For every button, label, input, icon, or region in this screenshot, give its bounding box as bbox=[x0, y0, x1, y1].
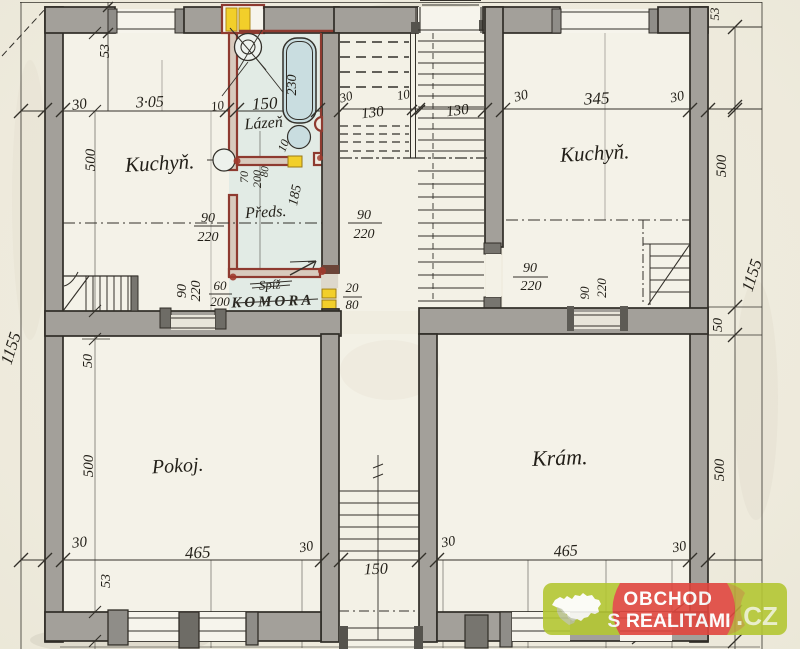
svg-text:53: 53 bbox=[99, 574, 114, 588]
svg-text:80: 80 bbox=[346, 297, 360, 312]
svg-text:500: 500 bbox=[81, 454, 97, 477]
svg-text:53: 53 bbox=[707, 7, 722, 21]
svg-text:200: 200 bbox=[210, 294, 230, 309]
svg-text:90: 90 bbox=[201, 211, 215, 226]
svg-text:Spíž: Spíž bbox=[258, 276, 282, 293]
svg-text:Předs.: Předs. bbox=[244, 203, 287, 222]
svg-text:10: 10 bbox=[210, 97, 225, 114]
svg-text:.CZ: .CZ bbox=[736, 601, 778, 631]
svg-text:30: 30 bbox=[439, 534, 456, 551]
svg-text:Kuchyň.: Kuchyň. bbox=[558, 139, 630, 167]
svg-text:Pokoj.: Pokoj. bbox=[150, 454, 204, 479]
svg-text:30: 30 bbox=[670, 539, 687, 556]
svg-text:90: 90 bbox=[175, 284, 190, 298]
svg-text:KOMORA: KOMORA bbox=[230, 293, 315, 312]
svg-text:220: 220 bbox=[521, 279, 542, 294]
svg-text:S REALITAMI: S REALITAMI bbox=[607, 610, 730, 632]
svg-text:130: 130 bbox=[445, 102, 470, 121]
svg-text:70: 70 bbox=[237, 171, 251, 183]
svg-text:OBCHOD: OBCHOD bbox=[623, 589, 712, 610]
svg-text:130: 130 bbox=[360, 104, 385, 123]
svg-text:30: 30 bbox=[70, 96, 89, 114]
svg-text:Krám.: Krám. bbox=[531, 444, 588, 471]
svg-text:220: 220 bbox=[594, 278, 609, 298]
svg-text:50: 50 bbox=[81, 354, 96, 368]
svg-text:90: 90 bbox=[577, 286, 592, 300]
svg-text:30: 30 bbox=[668, 89, 686, 107]
svg-text:500: 500 bbox=[83, 148, 99, 171]
svg-text:53: 53 bbox=[98, 44, 113, 58]
svg-text:220: 220 bbox=[354, 227, 375, 242]
svg-text:220: 220 bbox=[198, 230, 219, 245]
svg-text:60: 60 bbox=[214, 278, 228, 293]
svg-text:150: 150 bbox=[364, 561, 389, 579]
svg-text:80: 80 bbox=[259, 165, 272, 178]
svg-text:90: 90 bbox=[523, 261, 537, 276]
svg-text:345: 345 bbox=[582, 88, 609, 108]
svg-text:30: 30 bbox=[297, 539, 314, 556]
svg-text:30: 30 bbox=[70, 534, 88, 552]
svg-text:90: 90 bbox=[357, 208, 371, 223]
svg-text:50: 50 bbox=[711, 318, 726, 332]
svg-text:500: 500 bbox=[714, 154, 730, 177]
svg-text:150: 150 bbox=[251, 93, 278, 113]
svg-text:465: 465 bbox=[553, 542, 578, 560]
svg-text:20: 20 bbox=[346, 280, 360, 295]
svg-text:Lázeň: Lázeň bbox=[243, 114, 283, 134]
svg-text:Kuchyň.: Kuchyň. bbox=[123, 149, 195, 177]
svg-text:220: 220 bbox=[189, 281, 204, 302]
svg-text:500: 500 bbox=[712, 458, 728, 481]
svg-text:230: 230 bbox=[285, 75, 300, 96]
svg-text:3·05: 3·05 bbox=[135, 94, 165, 112]
svg-text:465: 465 bbox=[184, 542, 210, 562]
